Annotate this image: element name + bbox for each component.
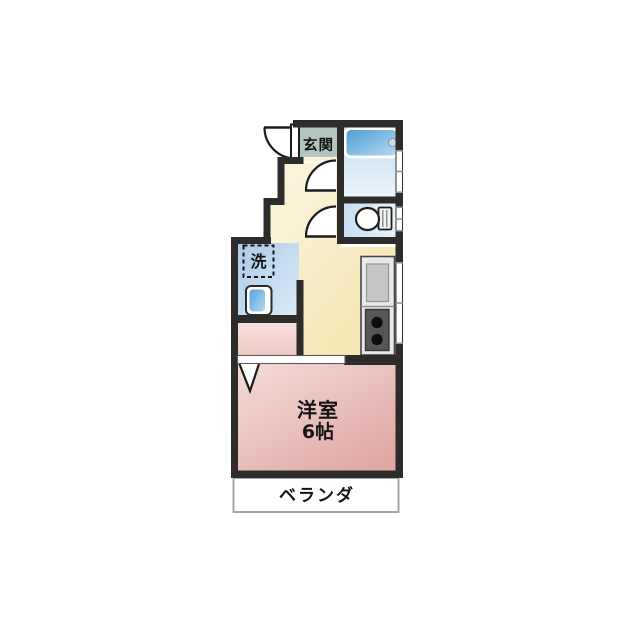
- floorplan-canvas: 玄関 洗 洋室 6帖 ベランダ: [0, 0, 640, 640]
- bathtub-faucet-icon: [389, 139, 397, 147]
- wall-genkan-bath: [337, 120, 344, 244]
- toilet-tank-icon: [379, 208, 392, 230]
- wall-room-top: [344, 355, 403, 365]
- genkan-label: 玄関: [303, 136, 334, 154]
- wall-top: [293, 120, 403, 128]
- wall-west: [231, 237, 238, 478]
- floorplan: 玄関 洗 洋室 6帖 ベランダ: [0, 0, 640, 640]
- window-toilet: [396, 207, 403, 232]
- main-room-size-label: 6帖: [302, 420, 334, 443]
- entrance-door-panel: [291, 125, 299, 162]
- wall-step: [278, 157, 285, 205]
- wall-closet-right: [297, 280, 304, 357]
- wall-step: [231, 237, 271, 244]
- washing-machine-drum: [250, 290, 266, 312]
- window-bath: [396, 150, 403, 193]
- veranda-label: ベランダ: [279, 485, 355, 506]
- stove-burner-icon: [371, 334, 382, 345]
- wall-toilet-bottom: [337, 237, 403, 244]
- closet-opening-track: [238, 356, 346, 364]
- wall-bath-toilet: [337, 197, 403, 204]
- wall-bottom: [231, 471, 403, 479]
- wall-laundry-bottom: [231, 315, 304, 323]
- main-room-label: 洋室: [297, 398, 339, 422]
- room-closet-floor: [236, 320, 300, 360]
- toilet-bowl-icon: [356, 208, 379, 230]
- kitchen-sink-icon: [367, 264, 389, 302]
- window-kitchen: [396, 262, 403, 344]
- laundry-label: 洗: [250, 252, 266, 271]
- stove-burner-icon: [371, 317, 382, 328]
